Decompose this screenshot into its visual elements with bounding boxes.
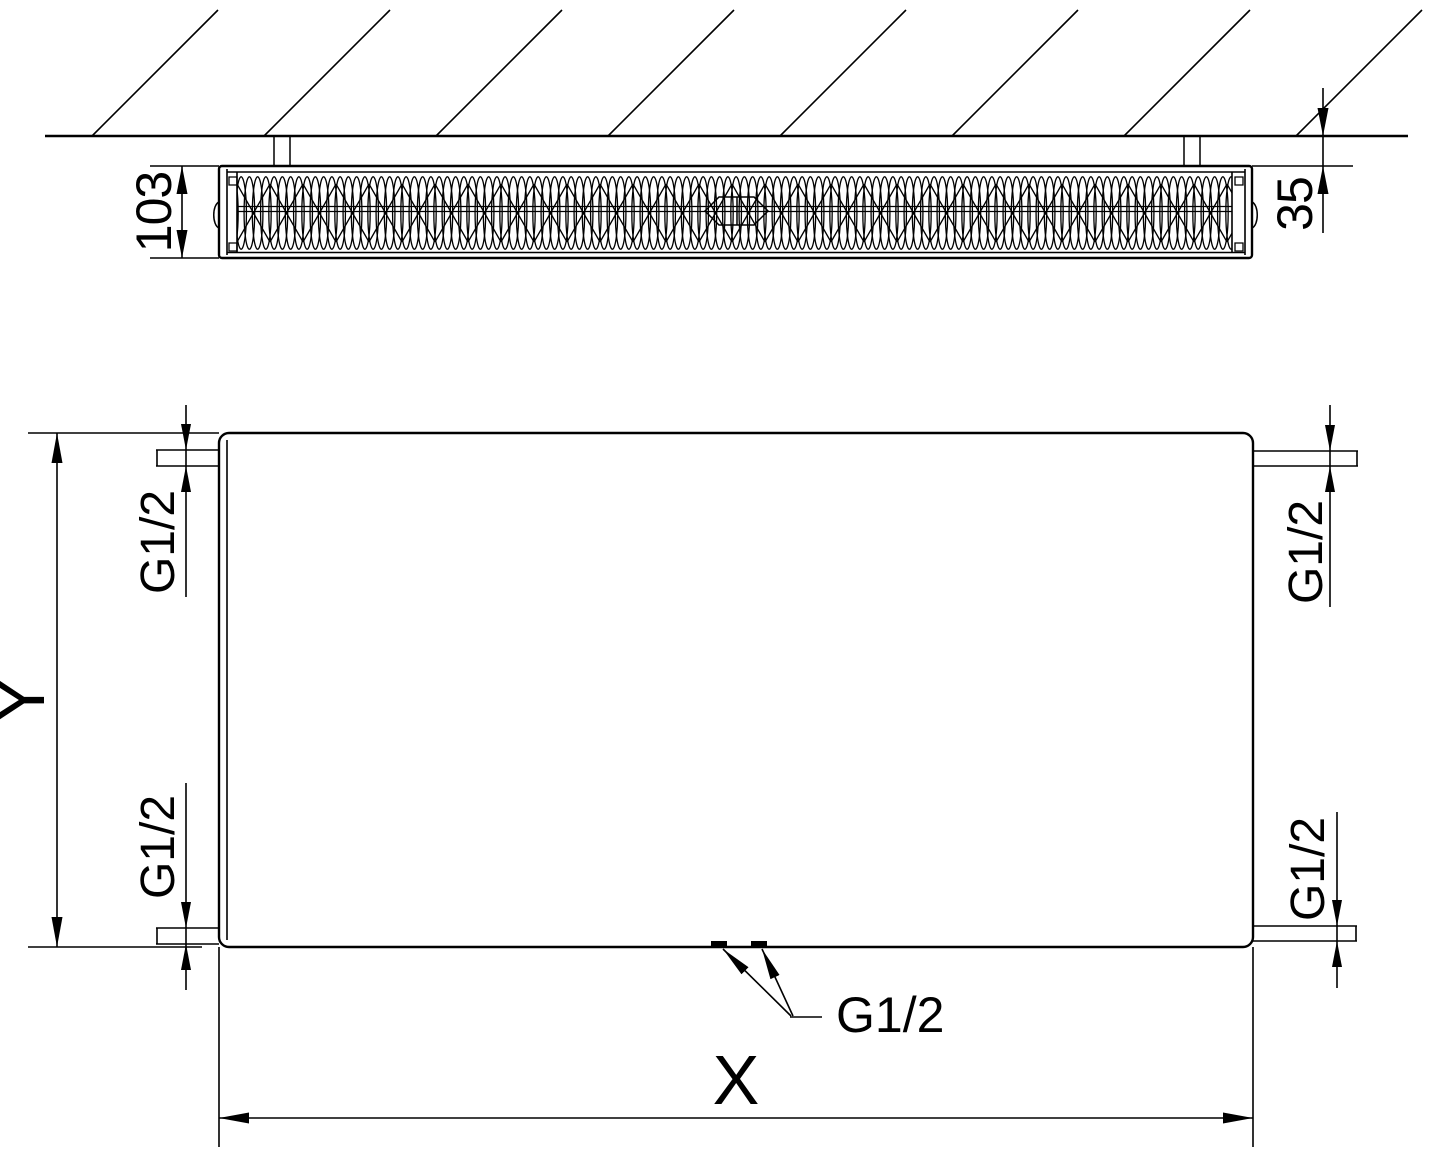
arrowhead-up [52, 433, 63, 463]
dimension-width-x: X [219, 947, 1253, 1147]
bottom-center-tapping-1 [711, 941, 727, 946]
wall-hatching [92, 10, 1422, 136]
mounting-bracket-left [274, 136, 290, 166]
height-label: Y [0, 677, 59, 724]
bottom-center-tapping-2 [751, 941, 767, 946]
dimension-g12-top-right: G1/2 [1280, 405, 1335, 607]
wall-gap-label: 35 [1267, 177, 1323, 231]
arrowhead-up [181, 466, 191, 492]
depth-label: 103 [126, 172, 182, 252]
arrowhead-right [1223, 1113, 1253, 1124]
g12-top-right-label: G1/2 [1280, 500, 1333, 604]
convector-fins [237, 176, 1232, 250]
connection-stub-bottom-right [1253, 926, 1357, 941]
arrowhead-down [52, 917, 63, 947]
radiator-top-view [214, 166, 1258, 258]
arrowhead-down [1325, 425, 1335, 451]
g12-bottom-left-label: G1/2 [132, 795, 185, 899]
dimension-wall-gap-35: 35 [1252, 88, 1353, 233]
g12-top-left-label: G1/2 [132, 490, 185, 594]
connection-stub-bottom-left [156, 928, 219, 944]
arrowhead-up [1332, 941, 1342, 967]
dimension-g12-bottom-right: G1/2 [1282, 812, 1342, 988]
radiator-dimension-drawing: 103 35 Y X G1/2 [0, 0, 1435, 1157]
callout-g12-bottom-center: G1/2 [723, 949, 944, 1043]
arrowhead-down [1318, 108, 1329, 136]
g12-bottom-right-label: G1/2 [1282, 817, 1335, 921]
mounting-bracket-right [1184, 136, 1200, 166]
drawing-svg: 103 35 Y X G1/2 [0, 0, 1435, 1157]
arrowhead-up [1325, 466, 1335, 492]
connection-stub-top-left [156, 450, 219, 466]
g12-bottom-center-label: G1/2 [836, 987, 944, 1043]
dimension-g12-bottom-left: G1/2 [132, 783, 191, 990]
connection-stub-top-right [1253, 451, 1358, 466]
arrowhead-down [181, 424, 191, 450]
width-label: X [713, 1041, 760, 1119]
wall-section [45, 10, 1422, 166]
radiator-front-view [156, 433, 1358, 947]
leader-line-2 [762, 949, 793, 1016]
arrowhead-down [181, 902, 191, 928]
front-panel-outline [219, 433, 1253, 947]
arrowhead-up [181, 944, 191, 970]
arrowhead-left [219, 1113, 249, 1124]
dimension-depth-103: 103 [126, 166, 219, 258]
leader-line-1 [723, 949, 791, 1016]
